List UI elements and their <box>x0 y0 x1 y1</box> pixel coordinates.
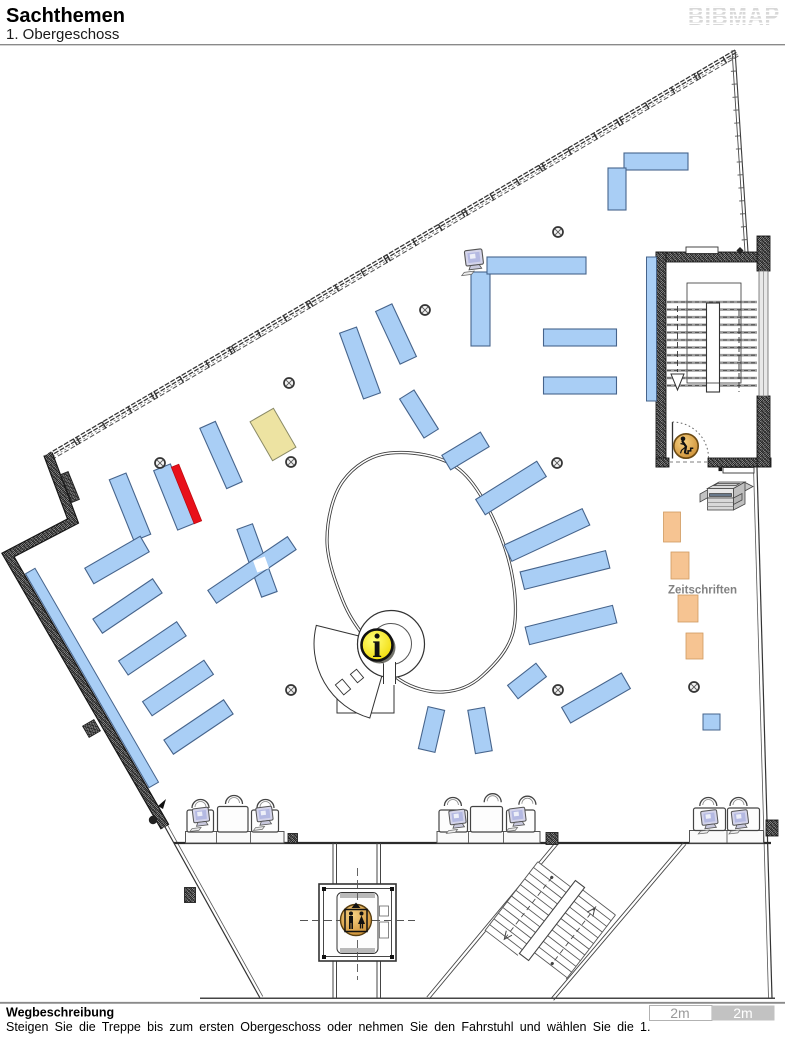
svg-text:Sachthemen: Sachthemen <box>6 5 125 27</box>
svg-text:1. Obergeschoss: 1. Obergeschoss <box>6 26 119 43</box>
svg-text:i: i <box>372 628 381 665</box>
svg-text:2m: 2m <box>670 1005 689 1021</box>
svg-text:Zeitschriften: Zeitschriften <box>668 585 737 597</box>
svg-text:Wegbeschreibung: Wegbeschreibung <box>6 1006 114 1020</box>
svg-text:BIBMAP: BIBMAP <box>688 1 780 31</box>
svg-text:Steigen Sie die Treppe bis zum: Steigen Sie die Treppe bis zum ersten Ob… <box>6 1020 651 1034</box>
svg-text:2m: 2m <box>733 1005 752 1021</box>
